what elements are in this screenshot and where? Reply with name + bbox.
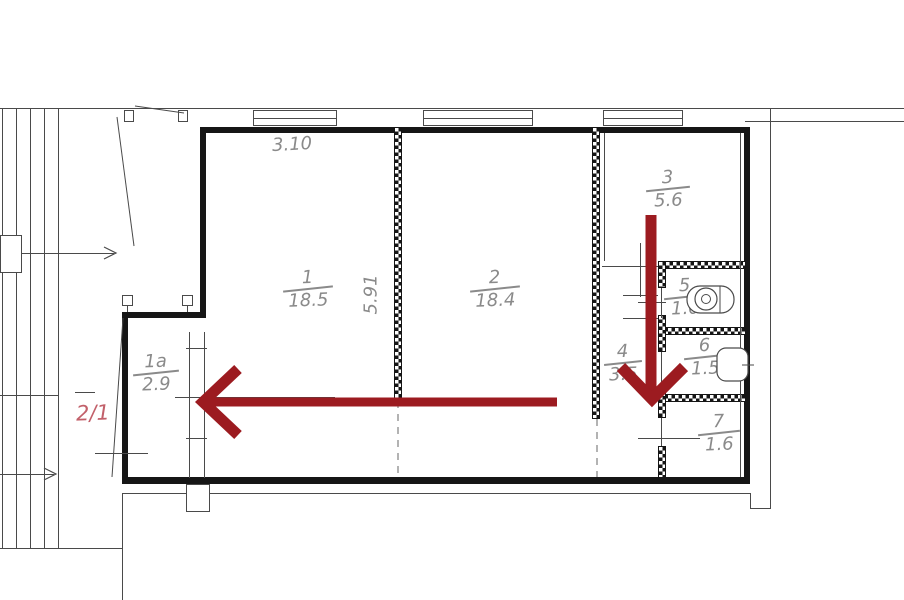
door-opening-line (623, 318, 658, 319)
door-opening-line (640, 243, 641, 297)
wall-annex-left (122, 312, 128, 484)
stair-landing-box (0, 235, 22, 273)
door-threshold-line (661, 418, 662, 446)
window-glass-line (254, 118, 336, 119)
dimension-width: 3.10 (271, 133, 312, 156)
door-jamb-box (122, 295, 133, 306)
partition-corridor-seg (658, 315, 666, 352)
room-label-7: 7 1.6 (697, 411, 740, 454)
partition-corridor-seg (658, 388, 666, 418)
room-label-1: 1 18.5 (282, 267, 333, 311)
room-label-5: 5 1.0 (663, 275, 706, 318)
flow-arrow-left-icon (203, 369, 557, 435)
opening-1a-cap (186, 348, 207, 349)
room-area: 5.6 (646, 190, 691, 211)
door-jamb-box (178, 110, 188, 122)
floor-plan-canvas: 3.10 5.91 2/1 1 18.5 1a 2.9 2 18.4 3 5.6… (0, 0, 904, 600)
wall-bottom (122, 477, 750, 484)
label-leader-line (638, 438, 700, 439)
unit-number-label: 2/1 (76, 400, 111, 425)
building-outline-line (770, 108, 771, 508)
wall-left-upper (200, 127, 206, 318)
dimension-height: 5.91 (361, 265, 382, 315)
room-number: 6 (683, 335, 726, 355)
label-leader-line (175, 397, 335, 398)
wall-top (203, 127, 750, 133)
partition-corridor-seg (658, 446, 666, 478)
stair-direction-line (22, 253, 114, 254)
corridor-line (602, 266, 658, 267)
room-number: 3 (645, 167, 690, 188)
window-room2 (423, 110, 533, 126)
room-number: 4 (603, 341, 642, 361)
partition-room2-corridor (592, 127, 600, 419)
building-outline-line (745, 121, 904, 122)
stair-tread-line (58, 108, 59, 548)
building-outline-line (750, 508, 771, 509)
door-opening-line (623, 295, 658, 296)
room-label-4: 4 3.5 (603, 341, 642, 384)
dimension-tick (75, 392, 95, 393)
stair-tread-line (16, 108, 17, 548)
opening-1a-line (204, 332, 205, 478)
room-area: 18.4 (470, 290, 521, 311)
label-leader-line (638, 302, 666, 303)
room-area: 3.5 (604, 364, 643, 384)
room-number: 1 (282, 267, 333, 288)
building-outline-line (122, 493, 750, 494)
room3-inner-line (604, 133, 605, 261)
partition-room3-room5 (658, 261, 746, 269)
wall-annex-top (122, 312, 206, 318)
pier-box (186, 484, 210, 512)
window-glass-line (604, 118, 682, 119)
building-outline-line (750, 493, 751, 508)
room-label-2: 2 18.4 (469, 267, 520, 311)
door-leaf-line (117, 117, 134, 246)
room-number: 7 (697, 411, 740, 431)
window-room1 (253, 110, 337, 126)
opening-1a-line (189, 332, 190, 478)
room-area: 1.5 (684, 358, 727, 378)
room-label-1a: 1a 2.9 (132, 351, 179, 395)
room-area: 2.9 (133, 374, 180, 395)
door-jamb-box (182, 295, 193, 306)
stair-landing-line (0, 395, 59, 396)
stair-tread-line (44, 108, 45, 548)
door-threshold-line (661, 352, 662, 388)
building-outline-line (0, 548, 122, 549)
stair-tread-line (30, 108, 31, 548)
partition-room1-room2 (394, 127, 402, 401)
building-outline-line (122, 493, 123, 600)
door-threshold-line (661, 288, 662, 318)
partition-room6-room7 (660, 394, 746, 402)
window-room3 (603, 110, 683, 126)
partition-room5-room6 (660, 327, 746, 335)
inner-wall-face-line (740, 133, 741, 477)
room-area: 1.0 (664, 298, 707, 318)
room-label-3: 3 5.6 (645, 167, 690, 211)
arrow-head (203, 369, 238, 435)
wall-right (744, 127, 750, 484)
room-number: 5 (663, 275, 706, 295)
stair-direction-line (0, 474, 54, 475)
annotation-overlay (0, 0, 904, 600)
dimension-tick (95, 453, 148, 454)
room-area: 1.6 (698, 434, 741, 454)
stair-tread-line (2, 108, 3, 548)
window-glass-line (424, 118, 532, 119)
opening-1a-cap (186, 438, 207, 439)
building-outline-line (0, 108, 904, 109)
room-label-6: 6 1.5 (683, 335, 726, 378)
room-number: 2 (469, 267, 520, 288)
door-jamb-box (124, 110, 134, 122)
room-area: 18.5 (283, 290, 334, 311)
room-number: 1a (132, 351, 179, 372)
